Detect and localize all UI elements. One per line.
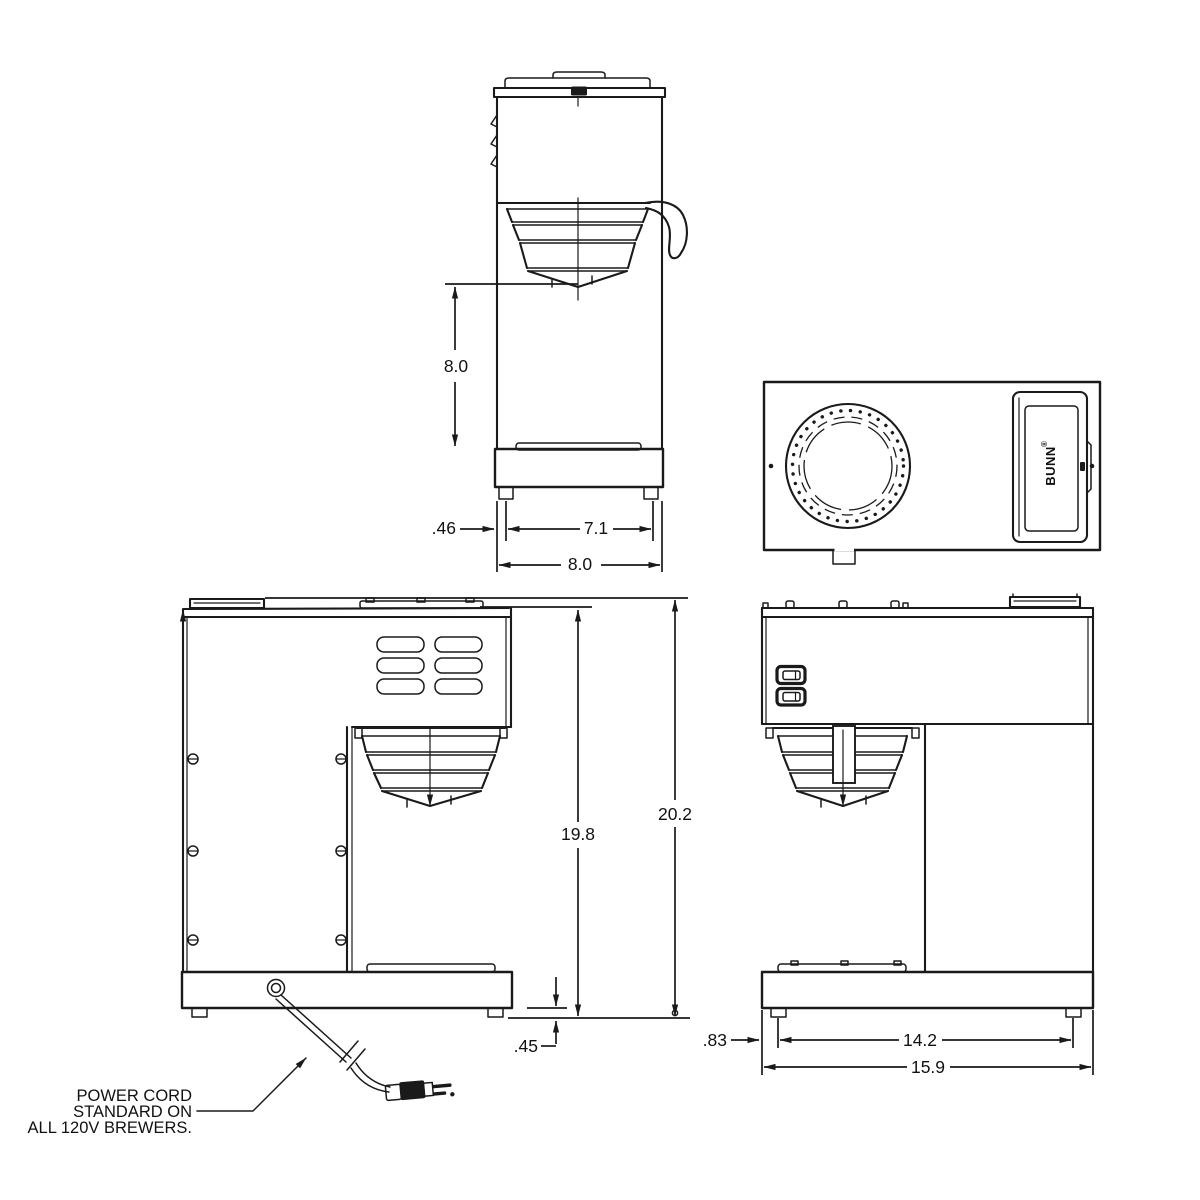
power-switches: [777, 667, 805, 706]
cord-break-marks: [340, 1041, 365, 1070]
warmer-switch-bottom: [777, 689, 805, 706]
bunn-logo-reg: ®: [1040, 441, 1049, 447]
top-view-tab: [833, 548, 855, 564]
dim-side-height: 8.0: [444, 284, 578, 446]
power-cord-note-line-3: ALL 120V BREWERS.: [28, 1119, 192, 1137]
funnel-handle-side: [645, 202, 687, 258]
dim-total-height: 20.2: [658, 600, 692, 1016]
bunn-logo-text: BUNN: [1043, 446, 1058, 486]
dim-body-height: 19.8: [480, 607, 595, 1016]
dim-total-height-label: 20.2: [658, 804, 692, 824]
technical-drawing: 8.0 .46 7.1 8.0: [0, 0, 1200, 1200]
brew-funnel-front: [766, 726, 919, 807]
drip-tray-front: [778, 961, 906, 972]
dim-side-height-label: 8.0: [444, 356, 469, 376]
dim-front-foot-spacing-label: 14.2: [903, 1030, 937, 1050]
lid-rivet-dots: [793, 411, 904, 522]
dim-side-depth-label: 8.0: [568, 554, 593, 574]
rear-elevation-view: POWER CORD STANDARD ON ALL 120V BREWERS.…: [28, 598, 693, 1137]
cord-grommet: [268, 980, 285, 997]
power-plug: [385, 1078, 455, 1103]
dim-front-width-label: 15.9: [911, 1057, 945, 1077]
dim-foot-height: .45: [508, 977, 690, 1056]
drawing-canvas: 8.0 .46 7.1 8.0: [0, 0, 1200, 1200]
tank-lid-front: [1010, 594, 1080, 607]
dim-side-foot-inset-label: .46: [432, 518, 456, 538]
front-base: [762, 972, 1093, 1017]
plug-prong-top: [432, 1083, 451, 1088]
dim-foot-height-label: .45: [514, 1036, 538, 1056]
note-leader: [197, 1058, 306, 1111]
tank-lid-top: [786, 404, 910, 528]
dim-side-foot-spacing-label: 7.1: [584, 518, 608, 538]
power-cord: [268, 980, 455, 1103]
power-cord-note: POWER CORD STANDARD ON ALL 120V BREWERS.: [28, 1058, 306, 1137]
dim-body-height-label: 19.8: [561, 824, 595, 844]
vent-louvers: [377, 637, 482, 694]
screw-left: [769, 464, 774, 469]
front-elevation-view: .83 14.2 15.9: [703, 594, 1093, 1077]
plug-prong-bottom: [433, 1091, 446, 1096]
dim-side-bottom: .46 7.1 8.0: [432, 501, 662, 574]
brew-funnel-rear: [355, 728, 507, 807]
trunk-screws: [188, 754, 346, 945]
dim-front-bottom: .83 14.2 15.9: [703, 1010, 1093, 1077]
top-view: BUNN ®: [764, 382, 1100, 564]
tank-lid-side: [494, 72, 665, 106]
side-view-base: [495, 443, 663, 499]
rear-base: [182, 972, 512, 1017]
warmer-switch-top: [777, 667, 805, 684]
funnel-handle-front: [833, 726, 855, 783]
rear-top-plate: [360, 598, 483, 608]
dim-front-foot-inset-label: .83: [703, 1030, 727, 1050]
tank-lid-rear: [190, 599, 264, 608]
side-view: 8.0 .46 7.1 8.0: [432, 72, 687, 574]
top-cover: BUNN ®: [1013, 392, 1091, 542]
